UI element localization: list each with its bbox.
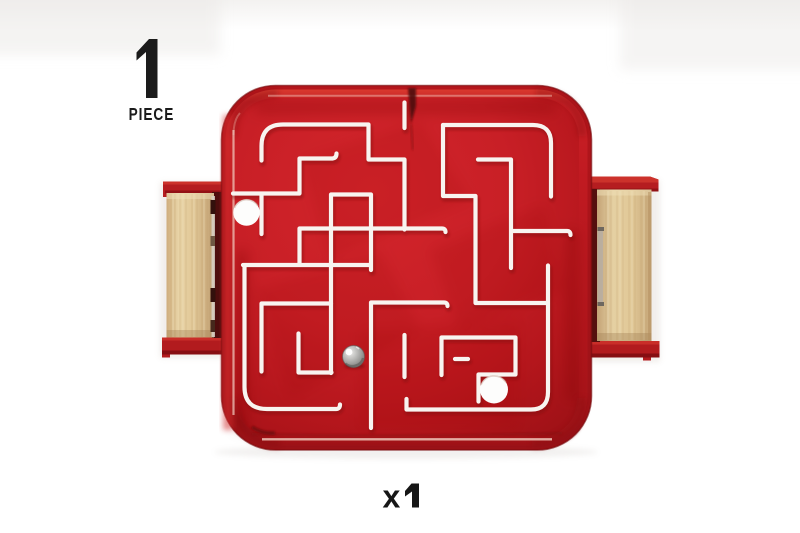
svg-text:x: x — [383, 479, 401, 515]
svg-text:PIECE: PIECE — [129, 106, 175, 125]
